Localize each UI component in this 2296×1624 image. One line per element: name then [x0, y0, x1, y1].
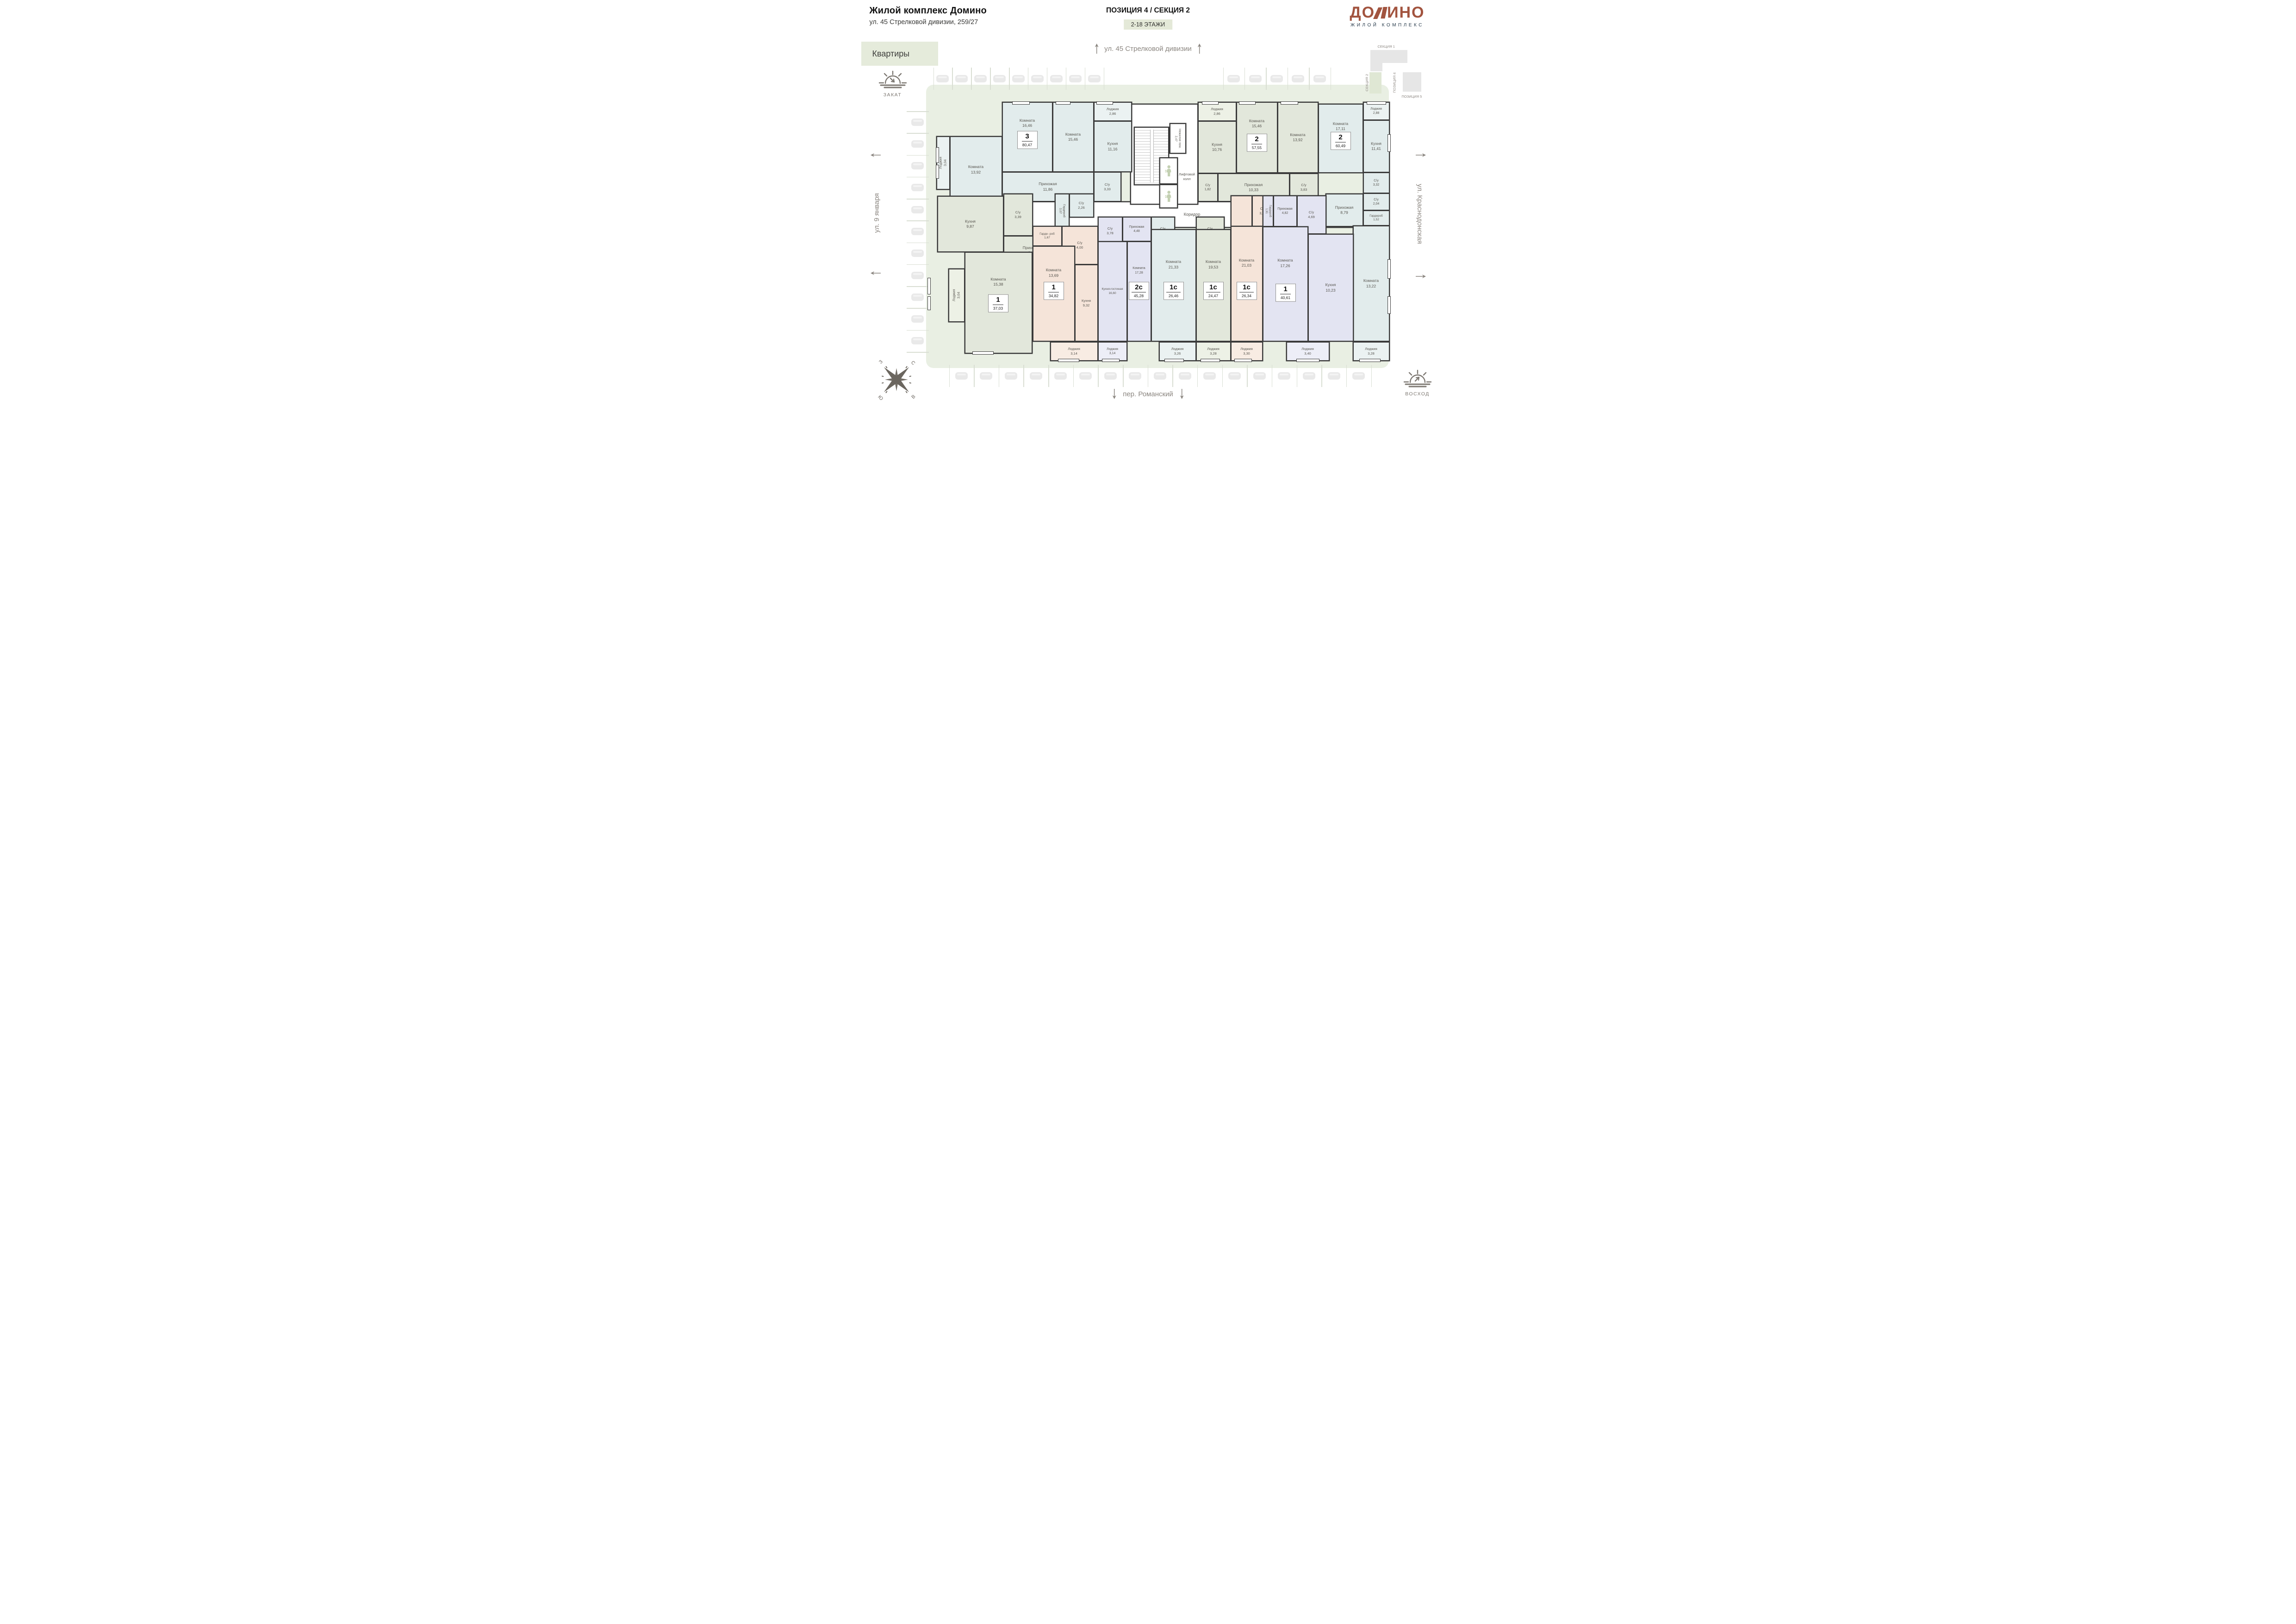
- parking-stall-divider: [907, 155, 929, 156]
- room-label: Комната13,69: [1046, 268, 1061, 278]
- parking-stall-divider: [1104, 68, 1105, 90]
- compass-north: С: [909, 360, 916, 366]
- window: [1201, 359, 1220, 362]
- floorplan-page: Жилой комплекс Домино ул. 45 Стрелковой …: [861, 0, 1435, 406]
- apartment-badge-2-60,49[interactable]: 260,49: [1331, 132, 1351, 150]
- parking-stall-divider: [907, 177, 929, 178]
- parking-stall-divider: [907, 264, 929, 265]
- car-icon: [1249, 75, 1262, 82]
- room-label: Лоджия3,04: [939, 157, 948, 169]
- room-label: Комната13,92: [1290, 132, 1305, 143]
- minimap-position4-label: ПОЗИЦИЯ 4: [1392, 73, 1396, 93]
- car-icon: [1253, 372, 1266, 380]
- car-icon: [1050, 75, 1063, 82]
- parking-stall-divider: [1197, 365, 1198, 387]
- parking-stall-divider: [1098, 365, 1099, 387]
- room-кухня: Кухня9,32: [1076, 265, 1097, 341]
- parking-stall-divider: [1073, 365, 1074, 387]
- window: [936, 165, 939, 179]
- room-лоджия: Лоджия3,04: [949, 269, 964, 321]
- room-лоджия: Лоджия3,04: [937, 137, 949, 189]
- logo: ДОИНО ЖИЛОЙ КОМПЛЕКС: [1350, 5, 1425, 28]
- car-icon: [911, 206, 924, 213]
- room-label: С/у3,39: [1014, 210, 1021, 219]
- sunrise-icon: [1403, 369, 1432, 388]
- window: [927, 278, 931, 294]
- parking-stall-divider: [1272, 365, 1273, 387]
- car-icon: [1005, 372, 1017, 380]
- apartment-badge-1-37,03[interactable]: 137,03: [988, 294, 1008, 312]
- arrow-down-icon: [1112, 389, 1116, 399]
- room-label: Лоджия2,86: [1211, 107, 1223, 116]
- room-label: Прихожая8,79: [1335, 205, 1353, 215]
- room-лоджия: Лоджия3,14: [1051, 343, 1097, 360]
- room-label: Комната15,46: [1065, 132, 1081, 142]
- compass-west: З: [877, 359, 884, 365]
- page-address: ул. 45 Стрелковой дивизии, 259/27: [870, 19, 978, 26]
- apartment-badge-3-80,47[interactable]: 380,47: [1017, 131, 1038, 149]
- room-label: Гарде- роб1,67: [1039, 232, 1055, 240]
- parking-stall-divider: [907, 199, 929, 200]
- tab-apartments-label: Квартиры: [872, 49, 910, 59]
- minimap-section2-label: СЕКЦИЯ 2: [1365, 74, 1369, 91]
- parking-stall-divider: [907, 286, 929, 287]
- tab-apartments[interactable]: Квартиры: [861, 42, 938, 66]
- parking-stall-divider: [1244, 68, 1245, 90]
- parking-stall-divider: [1309, 68, 1310, 90]
- minimap-position5-label: ПОЗИЦИЯ 5: [1402, 94, 1422, 99]
- room-label: Гардероб1,52: [1369, 214, 1383, 222]
- car-icon: [936, 75, 949, 82]
- room-label: Комната21,03: [1239, 258, 1254, 268]
- parking-stall-divider: [1028, 68, 1029, 90]
- apartment-badge-2с-45,28[interactable]: 2с45,28: [1129, 282, 1149, 300]
- room-лоджия: Лоджия3,14: [1099, 343, 1126, 360]
- room-с/у: С/у3,39: [1004, 194, 1032, 235]
- car-icon: [911, 315, 924, 323]
- window: [1359, 359, 1381, 362]
- sunset-label: ЗАКАТ: [875, 92, 910, 98]
- room-комната: Комната13,92: [1278, 103, 1318, 172]
- apartment-badge-1с-24,47[interactable]: 1с24,47: [1203, 282, 1224, 300]
- elevator-person-icon: [1165, 164, 1172, 177]
- room-label: С/у4,00: [1076, 241, 1083, 250]
- room-комната: Комната15,46: [1053, 103, 1093, 171]
- parking-stall-divider: [907, 352, 929, 353]
- street-left: ул. 9 января: [873, 193, 881, 233]
- room-label: Комната15,46: [1249, 119, 1264, 129]
- car-icon: [911, 272, 924, 279]
- window: [1202, 101, 1219, 105]
- car-icon: [911, 337, 924, 344]
- car-icon: [1227, 75, 1240, 82]
- parking-stall-divider: [907, 330, 929, 331]
- parking-stall-divider: [1223, 68, 1224, 90]
- sunset-indicator: ЗАКАТ: [875, 69, 910, 98]
- room-label: Лоджия3,40: [1301, 347, 1314, 356]
- room-label: Гардероб3,07: [1058, 204, 1066, 218]
- floors-badge: 2-18 ЭТАЖИ: [1124, 19, 1173, 30]
- parking-stall-divider: [1066, 68, 1067, 90]
- room-label: Кухня10,23: [1325, 282, 1336, 293]
- apartment-badge-2-57,55[interactable]: 257,55: [1247, 134, 1267, 152]
- room: [1232, 196, 1251, 226]
- room-label: Прихожая4,48: [1129, 225, 1144, 233]
- room-комната: Комната13,92: [951, 137, 1002, 202]
- room-лоджия: Лоджия3,40: [1287, 343, 1329, 360]
- car-icon: [911, 294, 924, 301]
- car-icon: [1303, 372, 1315, 380]
- room-лоджия: Лоджия3,28: [1354, 343, 1389, 360]
- car-icon: [1328, 372, 1340, 380]
- parking-stall-divider: [907, 133, 929, 134]
- car-icon: [1079, 372, 1092, 380]
- parking-stall-divider: [1148, 365, 1149, 387]
- apartment-badge-1-34,82[interactable]: 134,82: [1044, 282, 1064, 300]
- car-icon: [993, 75, 1006, 82]
- compass-south: Ю: [877, 394, 884, 401]
- room-label: Комната13,92: [968, 164, 983, 175]
- window: [1102, 359, 1120, 362]
- room-комната: Комната13,22: [1354, 226, 1389, 341]
- parking-stall-divider: [1346, 365, 1347, 387]
- room-с/у: С/у2,04: [1364, 194, 1389, 210]
- room-лоджия: Лоджия2,86: [1199, 103, 1236, 120]
- car-icon: [1203, 372, 1216, 380]
- room-label: С/у3,33: [1104, 182, 1111, 192]
- apartment-badge-1-40,61[interactable]: 140,61: [1276, 284, 1296, 302]
- compass-rose: З С Ю В: [874, 357, 919, 404]
- car-icon: [1031, 75, 1044, 82]
- room-label: Лифтовой холл: [1177, 172, 1197, 181]
- elevator: [1160, 185, 1177, 207]
- room-кухня: Кухня10,76: [1199, 122, 1236, 173]
- arrow-up-icon: [1197, 44, 1202, 54]
- car-icon: [955, 75, 968, 82]
- room-прихожая: Прихожая4,48: [1123, 218, 1151, 241]
- parking-stall-divider: [907, 220, 929, 221]
- room-label: Лоджия3,04: [952, 289, 961, 302]
- room-гардероб: Гардероб1,91: [1263, 196, 1273, 226]
- elevator-icon: [1160, 185, 1177, 207]
- room-label: Прихожая10,33: [1244, 182, 1263, 193]
- room-label: Лоджия2,88: [1370, 107, 1382, 115]
- room-label: Кухня9,87: [965, 219, 976, 229]
- car-icon: [1270, 75, 1283, 82]
- car-icon: [1030, 372, 1042, 380]
- room-label: Лоджия2,86: [1107, 107, 1119, 116]
- parking-stall-divider: [1048, 365, 1049, 387]
- parking-stall-divider: [974, 365, 975, 387]
- room-лифтовой холл: Лифтовой холл: [1177, 165, 1197, 189]
- room-label: Кухня-гостиная16,60: [1102, 287, 1123, 295]
- parking-stall-divider: [1331, 68, 1332, 90]
- car-icon: [911, 119, 924, 126]
- room-с/у: С/у3,78: [1099, 218, 1122, 244]
- car-icon: [1012, 75, 1025, 82]
- parking-stall-divider: [1321, 365, 1322, 387]
- logo-brand: ДОИНО: [1350, 5, 1425, 20]
- parking-stall-divider: [1023, 365, 1024, 387]
- logo-subtitle: ЖИЛОЙ КОМПЛЕКС: [1350, 23, 1425, 28]
- arrow-down-icon: [1180, 389, 1184, 399]
- room-кухня: Кухня11,41: [1364, 121, 1389, 172]
- car-icon: [980, 372, 992, 380]
- window: [1388, 134, 1391, 152]
- room-гарде- роб: Гарде- роб1,67: [1033, 227, 1061, 245]
- room-label: Прихожая11,86: [1039, 181, 1057, 192]
- parking-stall-divider: [952, 68, 953, 90]
- room-кухня-гостиная: Кухня-гостиная16,60: [1099, 242, 1126, 341]
- car-icon: [1129, 372, 1141, 380]
- window: [1296, 359, 1319, 362]
- parking-stall-divider: [999, 365, 1000, 387]
- position-section-title: ПОЗИЦИЯ 4 / СЕКЦИЯ 2: [861, 6, 1435, 15]
- window: [927, 296, 931, 310]
- window: [1012, 101, 1030, 105]
- parking-stall-divider: [1047, 68, 1048, 90]
- room-label: С/у3,78: [1107, 226, 1114, 236]
- room-label: С/у2,04: [1373, 198, 1380, 206]
- room-label: Лоджия3,28: [1365, 347, 1377, 356]
- elevator-icon: [1160, 158, 1177, 183]
- room-кухня: Кухня9,87: [938, 197, 1003, 251]
- room-лоджия: Лоджия3,26: [1160, 343, 1195, 360]
- car-icon: [911, 140, 924, 148]
- window: [1234, 359, 1252, 362]
- car-icon: [1069, 75, 1082, 82]
- parking-stall-divider: [1247, 365, 1248, 387]
- arrow-left-icon: [871, 271, 881, 275]
- room-лоджия: Лоджия2,88: [1364, 103, 1389, 119]
- window: [1239, 101, 1256, 105]
- car-icon: [1278, 372, 1290, 380]
- arrow-right-icon: [1416, 274, 1426, 279]
- room-label: Кухня10,76: [1212, 142, 1222, 152]
- car-icon: [911, 162, 924, 169]
- parking-stall-divider: [1288, 68, 1288, 90]
- room-label: Лоджия3,28: [1207, 347, 1220, 356]
- room-label: С/у3,32: [1373, 179, 1380, 187]
- car-icon: [1179, 372, 1191, 380]
- parking-stall-divider: [1085, 68, 1086, 90]
- room-гардероб: Гардероб1,52: [1364, 211, 1389, 225]
- room-label: Кухня11,41: [1371, 141, 1381, 151]
- room-label: Комната21,33: [1166, 259, 1181, 269]
- car-icon: [911, 184, 924, 191]
- window: [1096, 101, 1113, 105]
- room-label: Комната16,46: [1020, 118, 1035, 128]
- parking-stall-divider: [1123, 365, 1124, 387]
- parking-stall-divider: [1009, 68, 1010, 90]
- room-label: Нежилое пом.2,47: [1174, 129, 1182, 149]
- parking-stall-divider: [907, 111, 929, 112]
- parking-stall-divider: [907, 243, 929, 244]
- room-с/у: С/у1,82: [1199, 174, 1217, 201]
- car-icon: [1228, 372, 1241, 380]
- room-label: Лоджия3,14: [1107, 347, 1118, 356]
- parking-stall-divider: [1172, 365, 1173, 387]
- car-icon: [974, 75, 987, 82]
- car-icon: [1352, 372, 1365, 380]
- window: [1367, 101, 1386, 105]
- room-label: С/у2,26: [1078, 201, 1085, 210]
- room-гардероб: Гардероб3,07: [1056, 194, 1069, 227]
- car-icon: [911, 228, 924, 235]
- car-icon: [1088, 75, 1101, 82]
- window: [1058, 359, 1079, 362]
- window: [972, 351, 994, 355]
- room-label: Кухня11,16: [1108, 141, 1118, 151]
- window: [1388, 296, 1391, 314]
- room-лоджия: Лоджия2,86: [1095, 103, 1131, 120]
- car-icon: [1054, 372, 1067, 380]
- room-label: Комната13,22: [1363, 278, 1379, 288]
- arrow-right-icon: [1416, 153, 1426, 157]
- sunrise-label: ВОСХОД: [1400, 391, 1435, 397]
- room-label: Прихожая4,82: [1277, 207, 1292, 215]
- room-label: Гардероб1,91: [1264, 205, 1272, 217]
- compass-east: В: [910, 394, 916, 400]
- minimap-section1-label: СЕКЦИЯ 1: [1378, 44, 1395, 49]
- room-прихожая: Прихожая8,79: [1326, 194, 1363, 226]
- room-с/у: С/у2,26: [1070, 194, 1093, 217]
- window: [1164, 359, 1184, 362]
- room-с/у: С/у3,33: [1095, 173, 1120, 201]
- window: [1281, 101, 1298, 105]
- arrow-left-icon: [871, 153, 881, 157]
- window: [936, 147, 939, 163]
- car-icon: [1104, 372, 1117, 380]
- window: [1056, 101, 1070, 105]
- room-прихожая: Прихожая4,82: [1274, 196, 1296, 226]
- room-label: С/у1,82: [1205, 183, 1211, 192]
- elevator-person-icon: [1165, 190, 1172, 203]
- street-top: ул. 45 Стрелковой дивизии: [1094, 44, 1202, 54]
- room-кухня: Кухня11,16: [1095, 122, 1131, 171]
- room-label: Лоджия3,30: [1240, 347, 1253, 356]
- room-label: Комната17,11: [1333, 121, 1348, 131]
- room-лоджия: Лоджия3,30: [1232, 343, 1262, 360]
- room-label: Лоджия3,14: [1068, 347, 1080, 356]
- parking-stall-divider: [907, 308, 929, 309]
- sunrise-indicator: ВОСХОД: [1400, 369, 1435, 397]
- room-label: Комната15,38: [990, 277, 1006, 287]
- minimap-section1-building: [1370, 50, 1407, 63]
- parking-stall-divider: [1371, 365, 1372, 387]
- apartment-badge-1с-26,46[interactable]: 1с26,46: [1164, 282, 1184, 300]
- room-label: Коридор: [1184, 212, 1201, 218]
- car-icon: [911, 250, 924, 257]
- parking-stall-divider: [949, 365, 950, 387]
- minimap-section1-building: [1370, 63, 1382, 71]
- car-icon: [1154, 372, 1166, 380]
- car-icon: [1292, 75, 1304, 82]
- site-minimap[interactable]: СЕКЦИЯ 1 СЕКЦИЯ 2 ПОЗИЦИЯ 4 ПОЗИЦИЯ 5: [1357, 44, 1427, 100]
- parking-stall-divider: [990, 68, 991, 90]
- street-right: ул. Краснодонская: [1415, 184, 1424, 244]
- elevator: [1160, 158, 1177, 183]
- minimap-section2-building: [1369, 72, 1381, 94]
- parking-stall-divider: [971, 68, 972, 90]
- room-label: Комната19,53: [1206, 259, 1221, 269]
- room-label: Комната17,28: [1132, 266, 1145, 275]
- parking-stall-divider: [1266, 68, 1267, 90]
- car-icon: [955, 372, 968, 380]
- minimap-position5-building: [1403, 72, 1421, 92]
- apartment-badge-1с-26,34[interactable]: 1с26,34: [1237, 282, 1257, 300]
- room-с/у: С/у3,32: [1364, 173, 1389, 193]
- window: [1388, 259, 1391, 279]
- room-лоджия: Лоджия3,28: [1197, 343, 1230, 360]
- arrow-up-icon: [1094, 44, 1099, 54]
- room-label: Лоджия3,26: [1171, 347, 1184, 356]
- street-bottom: пер. Романский: [1112, 389, 1184, 399]
- sunset-icon: [878, 69, 908, 89]
- room-label: Комната17,26: [1277, 258, 1293, 268]
- room-label: С/у3,83: [1300, 183, 1307, 192]
- room-label: Кухня9,32: [1082, 299, 1091, 308]
- parking-stall-divider: [1222, 365, 1223, 387]
- car-icon: [1313, 75, 1326, 82]
- room-label: С/у4,69: [1308, 210, 1315, 219]
- room-кухня: Кухня10,23: [1309, 235, 1353, 341]
- parking-stall-divider: [933, 68, 934, 90]
- parking-stall-divider: [1297, 365, 1298, 387]
- room-нежилое пом.: Нежилое пом.2,47: [1170, 124, 1185, 153]
